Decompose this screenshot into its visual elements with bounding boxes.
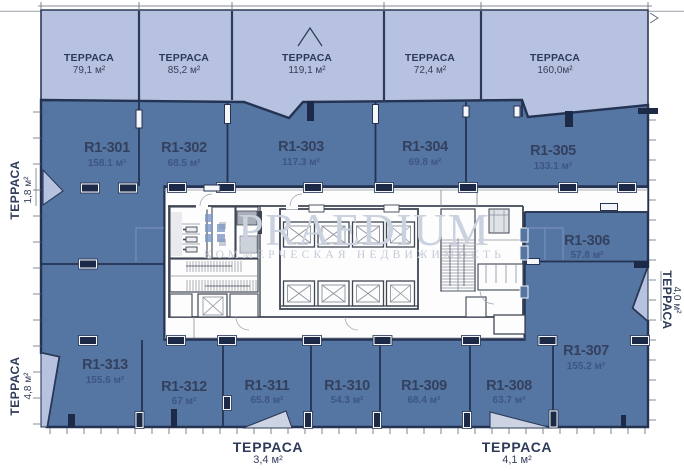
svg-text:4,8 м²: 4,8 м² bbox=[23, 372, 34, 400]
svg-text:ТЕРРАСА: ТЕРРАСА bbox=[530, 52, 580, 64]
svg-text:PRAEDIUM: PRAEDIUM bbox=[238, 204, 490, 255]
svg-text:R1-307: R1-307 bbox=[563, 343, 609, 359]
svg-text:119,1 м²: 119,1 м² bbox=[288, 65, 326, 76]
svg-text:КОММЕРЧЕСКАЯ НЕДВИЖИМОСТЬ: КОММЕРЧЕСКАЯ НЕДВИЖИМОСТЬ bbox=[204, 249, 505, 261]
svg-text:57.8 м²: 57.8 м² bbox=[571, 250, 605, 261]
svg-text:ТЕРРАСА: ТЕРРАСА bbox=[159, 52, 209, 64]
svg-text:3,4 м²: 3,4 м² bbox=[253, 454, 283, 466]
svg-text:72,4 м²: 72,4 м² bbox=[414, 65, 447, 76]
svg-text:R1-308: R1-308 bbox=[486, 378, 532, 394]
svg-text:R1-306: R1-306 bbox=[564, 233, 610, 249]
svg-text:79,1 м²: 79,1 м² bbox=[73, 65, 106, 76]
svg-text:4,0 м²: 4,0 м² bbox=[671, 287, 682, 315]
svg-text:R1-302: R1-302 bbox=[161, 140, 207, 156]
svg-text:155.2 м²: 155.2 м² bbox=[567, 361, 606, 372]
svg-text:ТЕРРАСА: ТЕРРАСА bbox=[405, 52, 455, 64]
svg-text:54.3 м²: 54.3 м² bbox=[331, 395, 365, 406]
svg-text:ТЕРРАСА: ТЕРРАСА bbox=[482, 439, 553, 455]
svg-text:R1-303: R1-303 bbox=[278, 139, 324, 155]
svg-text:117.3 м²: 117.3 м² bbox=[282, 157, 321, 168]
svg-text:R1-304: R1-304 bbox=[402, 139, 448, 155]
svg-text:R1-313: R1-313 bbox=[82, 357, 128, 373]
svg-text:R1-301: R1-301 bbox=[84, 140, 130, 156]
svg-text:ТЕРРАСА: ТЕРРАСА bbox=[64, 52, 114, 64]
svg-text:R1-309: R1-309 bbox=[401, 378, 447, 394]
svg-text:133.1 м²: 133.1 м² bbox=[534, 161, 573, 172]
svg-text:68.4 м²: 68.4 м² bbox=[408, 395, 442, 406]
svg-text:R1-310: R1-310 bbox=[324, 378, 370, 394]
svg-text:63.7 м²: 63.7 м² bbox=[493, 395, 527, 406]
svg-text:R1-305: R1-305 bbox=[530, 143, 576, 159]
svg-text:4,1 м²: 4,1 м² bbox=[502, 454, 532, 466]
svg-text:ТЕРРАСА: ТЕРРАСА bbox=[282, 52, 332, 64]
svg-text:R1-312: R1-312 bbox=[161, 379, 207, 395]
svg-text:155.6 м²: 155.6 м² bbox=[86, 375, 125, 386]
svg-text:R1-311: R1-311 bbox=[245, 378, 290, 394]
svg-text:ТЕРРАСА: ТЕРРАСА bbox=[233, 439, 304, 455]
svg-text:158.1 м²: 158.1 м² bbox=[88, 158, 127, 169]
svg-text:160,0м²: 160,0м² bbox=[537, 65, 573, 76]
svg-text:ТЕРРАСА: ТЕРРАСА bbox=[8, 356, 22, 415]
svg-text:1,8 м²: 1,8 м² bbox=[23, 176, 34, 204]
svg-text:68.5 м²: 68.5 м² bbox=[168, 158, 202, 169]
svg-text:67 м²: 67 м² bbox=[172, 396, 197, 407]
svg-text:ТЕРРАСА: ТЕРРАСА bbox=[8, 160, 22, 219]
svg-text:85,2 м²: 85,2 м² bbox=[168, 65, 201, 76]
svg-text:65.8 м²: 65.8 м² bbox=[251, 395, 285, 406]
svg-text:69.8 м²: 69.8 м² bbox=[409, 157, 443, 168]
